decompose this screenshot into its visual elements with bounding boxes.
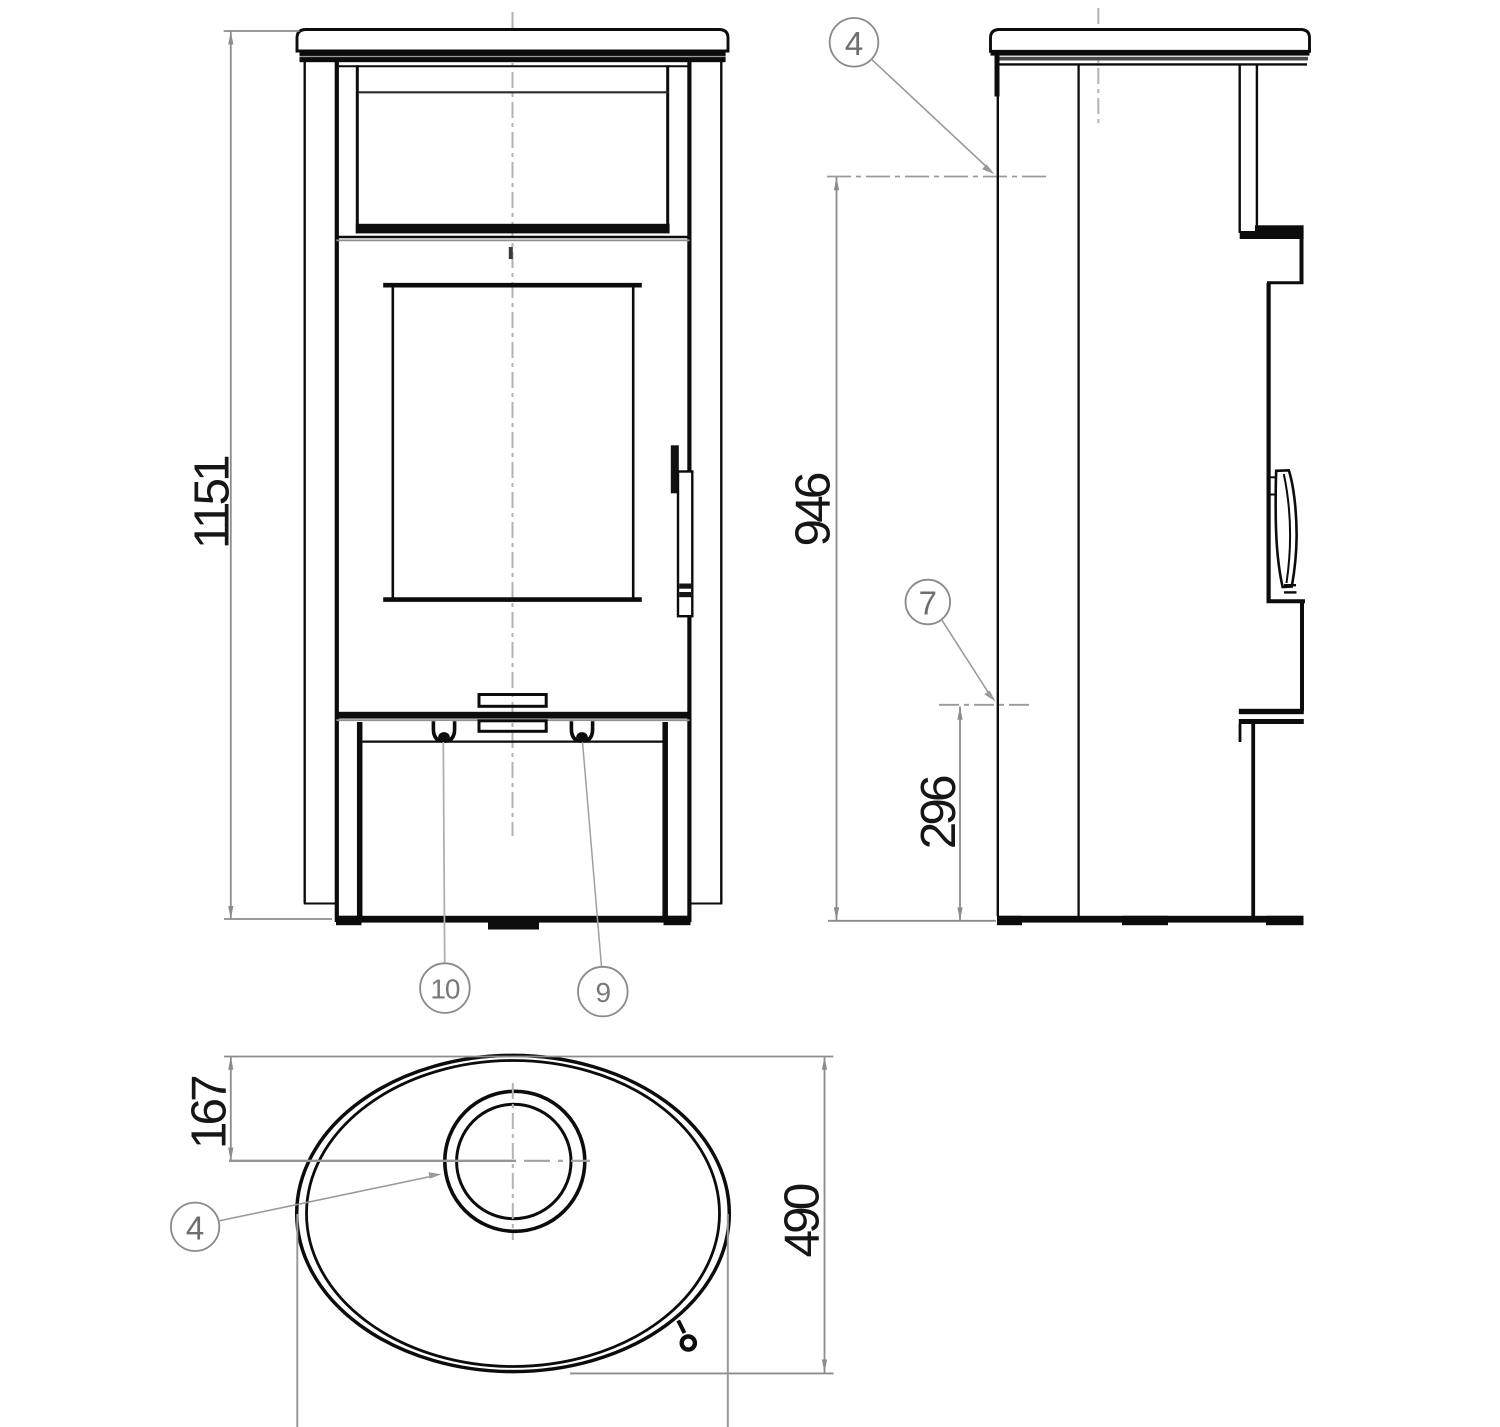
svg-text:946: 946 [785, 473, 840, 546]
svg-text:296: 296 [911, 776, 966, 849]
svg-text:1151: 1151 [185, 456, 240, 549]
svg-text:7: 7 [919, 585, 937, 622]
svg-text:10: 10 [430, 974, 460, 1005]
svg-text:4: 4 [845, 25, 863, 62]
svg-text:167: 167 [181, 1076, 236, 1149]
svg-text:4: 4 [186, 1209, 204, 1246]
svg-text:9: 9 [596, 977, 611, 1008]
svg-text:490: 490 [775, 1184, 830, 1257]
